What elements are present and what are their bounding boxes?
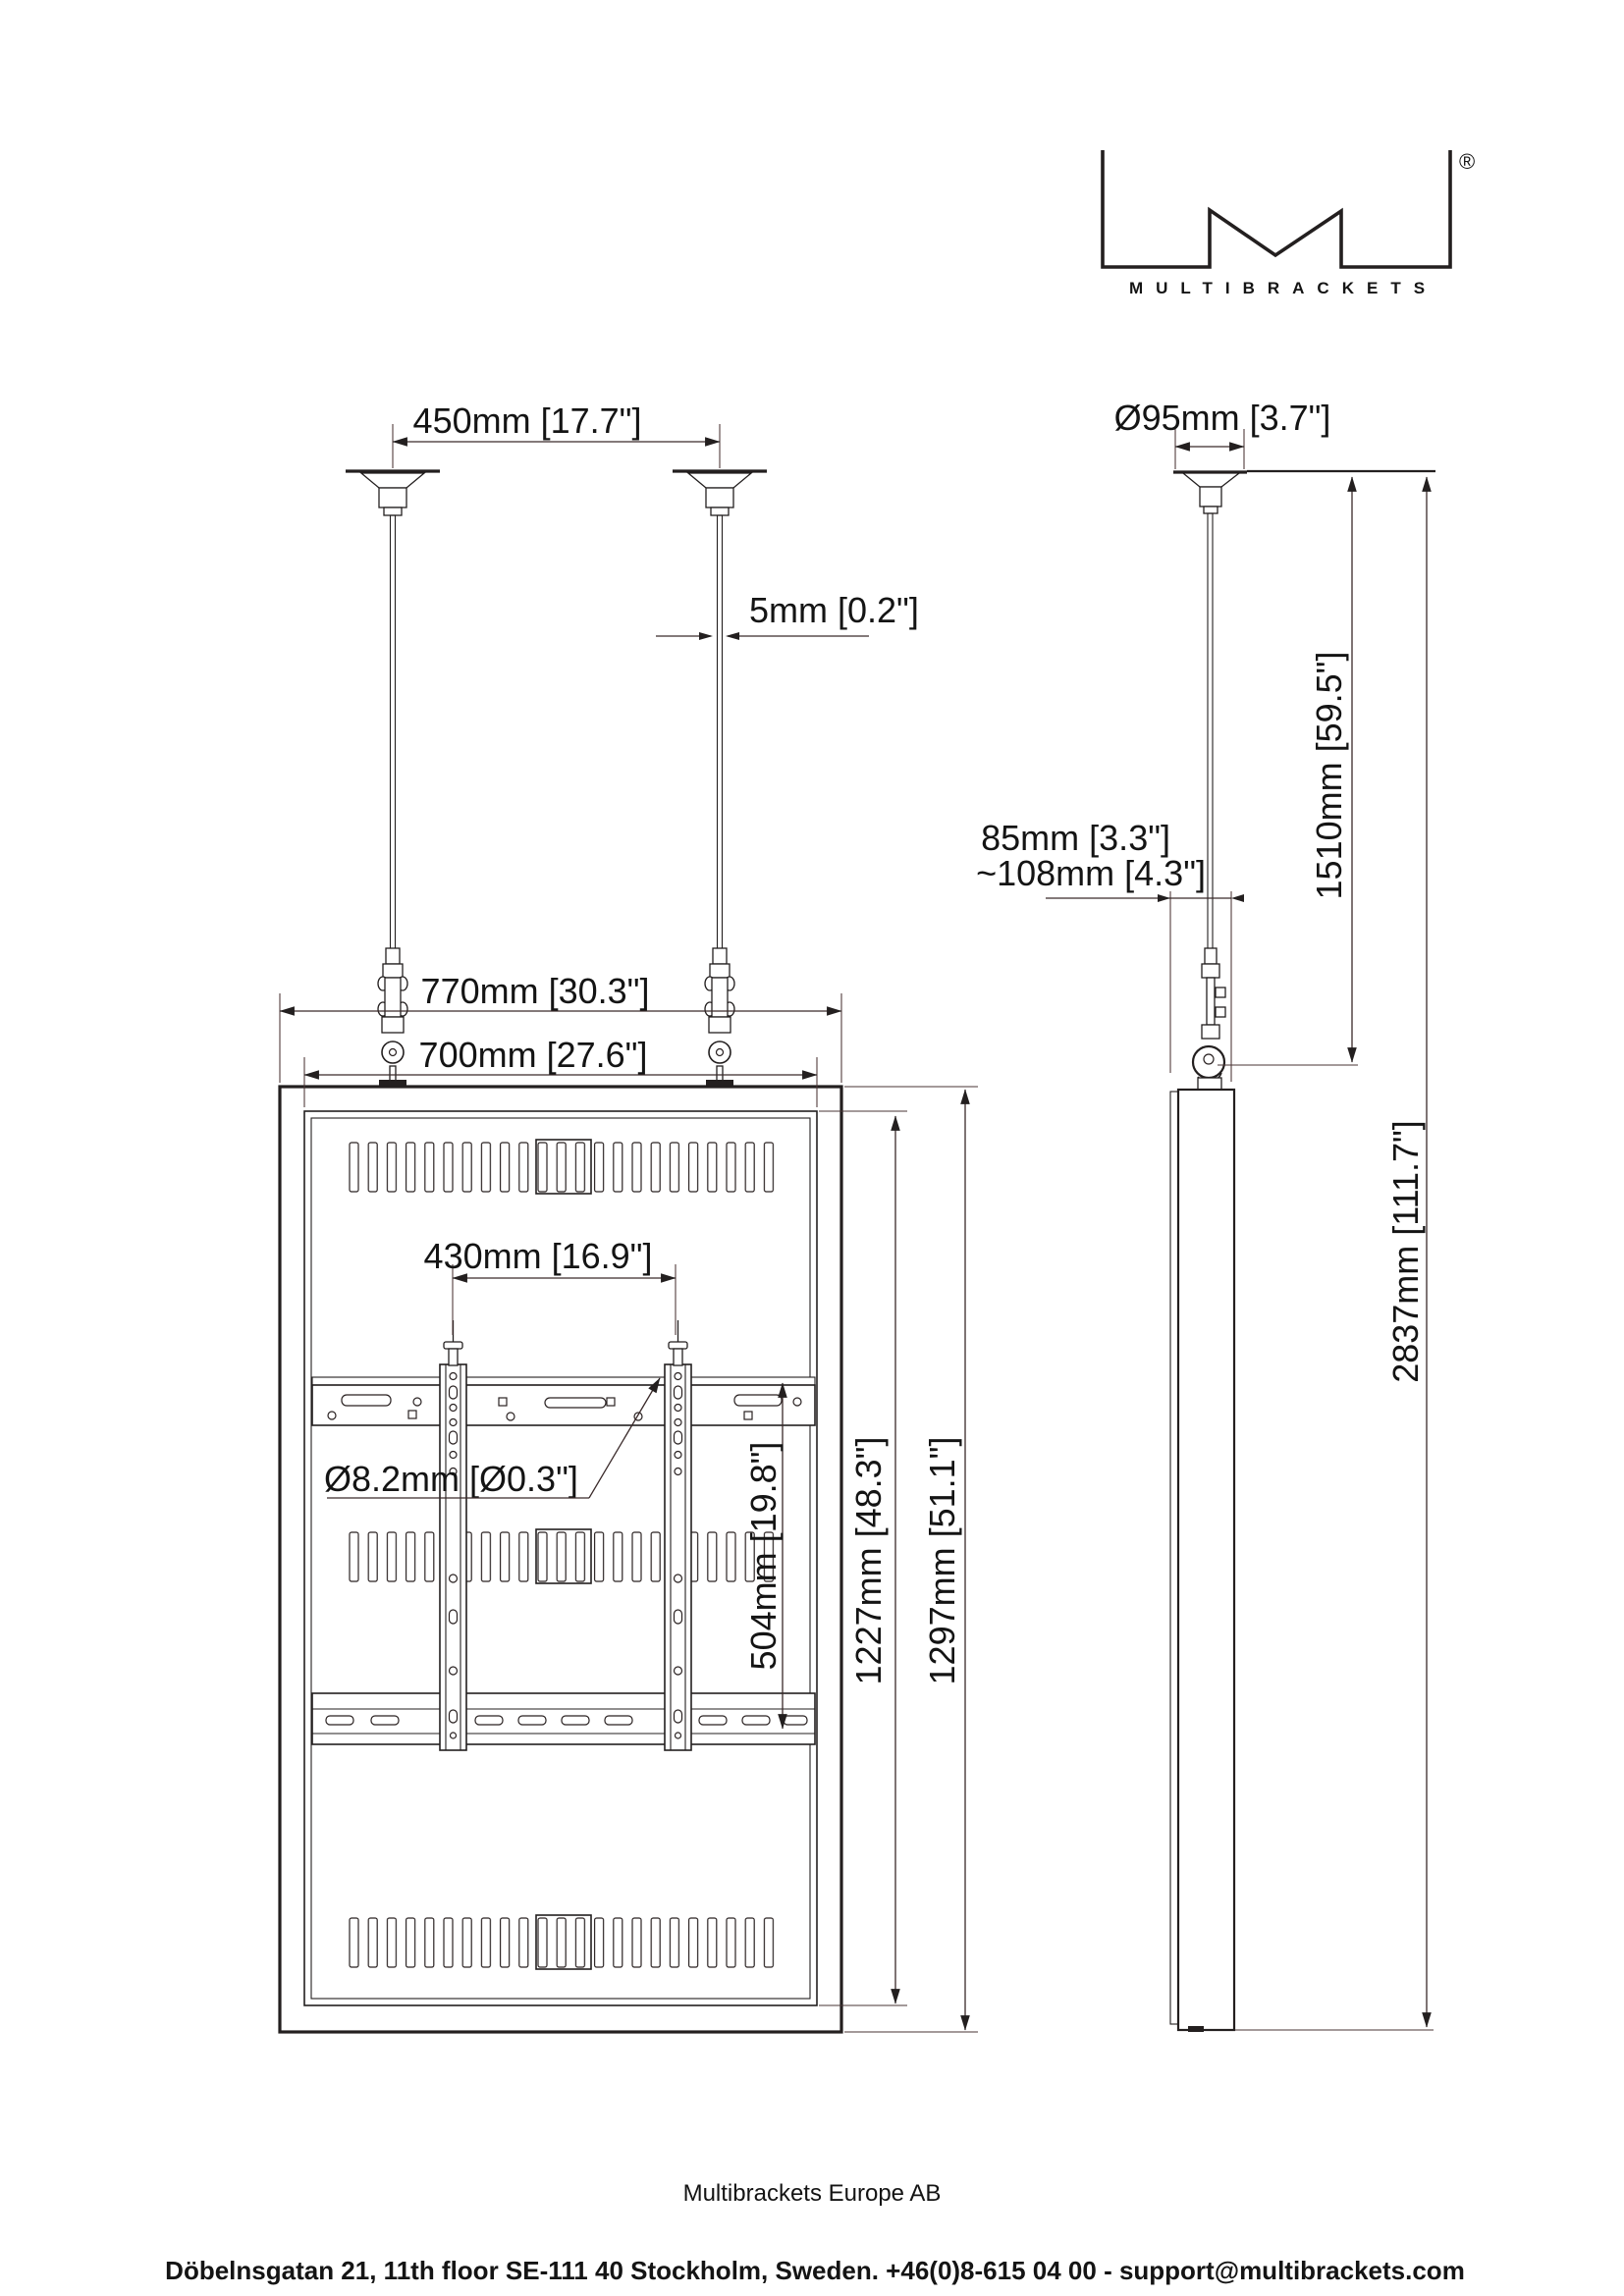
suspension-wire-side	[1208, 513, 1213, 950]
dim-wire-diameter: 5mm [0.2"]	[656, 590, 919, 640]
dim-label-1297: 1297mm [51.1"]	[922, 1437, 962, 1685]
dim-rail-spacing: 430mm [16.9"]	[424, 1236, 676, 1335]
turnbuckle-left	[378, 948, 407, 1086]
dim-label-108: ~108mm [4.3"]	[976, 853, 1206, 893]
dim-label-95: Ø95mm [3.7"]	[1114, 398, 1331, 438]
front-view: 450mm [17.7"] 5mm [0.2"] 770mm [30.3"] 7…	[280, 400, 978, 2032]
dim-ceiling-spacing: 450mm [17.7"]	[393, 400, 720, 468]
lower-mounting-bar	[312, 1693, 815, 1744]
vesa-rail-left	[440, 1320, 466, 1750]
upper-mounting-bar	[312, 1377, 815, 1425]
dim-label-1510: 1510mm [59.5"]	[1309, 652, 1349, 900]
vent-row-bottom	[346, 1917, 780, 1968]
vent-row-middle	[346, 1531, 780, 1582]
vesa-rail-right	[665, 1320, 691, 1750]
vent-row-top	[346, 1142, 780, 1193]
dim-label-85: 85mm [3.3"]	[981, 818, 1170, 858]
ceiling-mount-side	[1173, 472, 1247, 513]
footer-address: Döbelnsgatan 21, 11th floor SE-111 40 St…	[165, 2256, 1465, 2285]
dim-label-2837: 2837mm [111.7"]	[1385, 1120, 1426, 1383]
dim-inner-width: 700mm [27.6"]	[304, 1035, 817, 1107]
hook-bracket	[1198, 1078, 1221, 1090]
dim-rail-height: 504mm [19.8"]	[743, 1383, 784, 1729]
dim-depth: 85mm [3.3"] ~108mm [4.3"]	[976, 818, 1244, 1082]
dim-label-770: 770mm [30.3"]	[421, 971, 650, 1011]
technical-drawing-page: ® MULTIBRACKETS	[0, 0, 1624, 2296]
enclosure-side	[1170, 1090, 1234, 2032]
footer-company: Multibrackets Europe AB	[683, 2180, 942, 2207]
dim-plate-diameter: Ø95mm [3.7"]	[1114, 398, 1331, 469]
drawing-canvas: ® MULTIBRACKETS	[0, 0, 1624, 2296]
dim-inner-height: 1227mm [48.3"]	[819, 1111, 907, 2005]
logo-registered-mark: ®	[1459, 149, 1475, 174]
suspension-wire-right	[718, 515, 723, 950]
multibrackets-logo: ® MULTIBRACKETS	[1103, 149, 1475, 297]
dim-label-1227: 1227mm [48.3"]	[848, 1437, 889, 1685]
logo-m-icon	[1103, 150, 1450, 267]
turnbuckle-side	[1193, 948, 1225, 1090]
dim-label-700: 700mm [27.6"]	[419, 1035, 648, 1075]
dim-label-450: 450mm [17.7"]	[413, 400, 642, 441]
dim-label-5mm: 5mm [0.2"]	[749, 590, 919, 630]
hook-ring	[1193, 1046, 1224, 1078]
dim-label-504: 504mm [19.8"]	[743, 1442, 784, 1671]
dim-wire-drop: 1510mm [59.5"]	[1218, 477, 1358, 1065]
side-view: Ø95mm [3.7"] 85mm [3.3"] ~108mm [4.3"] 1…	[976, 398, 1435, 2032]
footer: Multibrackets Europe AB Döbelnsgatan 21,…	[165, 2180, 1465, 2285]
ceiling-mount-right	[673, 471, 767, 515]
ceiling-mount-left	[346, 471, 440, 515]
turnbuckle-right	[705, 948, 734, 1086]
suspension-wire-left	[391, 515, 396, 950]
dim-label-430: 430mm [16.9"]	[424, 1236, 653, 1276]
logo-brand-text: MULTIBRACKETS	[1129, 279, 1437, 297]
dim-label-hole: Ø8.2mm [Ø0.3"]	[324, 1459, 578, 1499]
